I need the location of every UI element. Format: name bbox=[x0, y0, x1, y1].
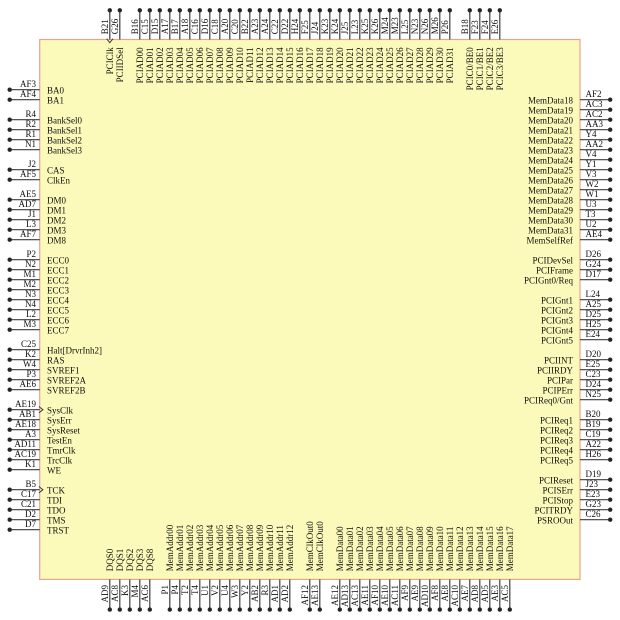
svg-text:MemData22: MemData22 bbox=[528, 135, 573, 145]
svg-text:F23: F23 bbox=[470, 20, 480, 35]
svg-text:AB1: AB1 bbox=[19, 409, 36, 419]
svg-text:N25: N25 bbox=[586, 389, 602, 399]
svg-text:AD13: AD13 bbox=[340, 585, 350, 607]
svg-text:ECC0: ECC0 bbox=[47, 255, 70, 265]
svg-text:PCIIDSel: PCIIDSel bbox=[115, 47, 125, 83]
svg-text:C22: C22 bbox=[270, 19, 280, 34]
svg-text:TMS: TMS bbox=[47, 515, 66, 525]
svg-text:MemClkOut0: MemClkOut0 bbox=[315, 521, 325, 572]
svg-text:C21: C21 bbox=[21, 499, 36, 509]
svg-text:SysClk: SysClk bbox=[47, 405, 74, 415]
svg-text:MemData24: MemData24 bbox=[528, 155, 573, 165]
svg-text:ECC1: ECC1 bbox=[47, 265, 69, 275]
svg-text:PCIAD15: PCIAD15 bbox=[285, 47, 295, 84]
svg-text:D2: D2 bbox=[25, 509, 36, 519]
svg-text:J25: J25 bbox=[340, 21, 350, 34]
svg-text:J2: J2 bbox=[28, 159, 36, 169]
svg-text:PCIAD07: PCIAD07 bbox=[205, 47, 215, 84]
svg-text:AE19: AE19 bbox=[15, 399, 36, 409]
svg-text:C17: C17 bbox=[21, 489, 37, 499]
svg-text:ECC4: ECC4 bbox=[47, 295, 70, 305]
svg-text:MemData18: MemData18 bbox=[528, 95, 573, 105]
svg-text:K26: K26 bbox=[370, 18, 380, 34]
svg-text:K25: K25 bbox=[360, 18, 370, 34]
svg-text:MemAddr10: MemAddr10 bbox=[265, 524, 275, 571]
svg-text:M24: M24 bbox=[380, 17, 390, 35]
svg-text:PCIC3/BE3: PCIC3/BE3 bbox=[495, 47, 505, 91]
svg-text:D25: D25 bbox=[586, 309, 602, 319]
svg-text:AD2: AD2 bbox=[280, 585, 290, 603]
svg-text:PCIAD27: PCIAD27 bbox=[405, 47, 415, 84]
svg-text:PCISErr: PCISErr bbox=[542, 485, 573, 495]
svg-text:MemData02: MemData02 bbox=[355, 526, 365, 571]
svg-text:BankSel2: BankSel2 bbox=[47, 135, 82, 145]
svg-text:CAS: CAS bbox=[47, 165, 65, 175]
svg-text:C18: C18 bbox=[210, 19, 220, 35]
svg-text:F24: F24 bbox=[480, 20, 490, 35]
svg-text:D19: D19 bbox=[586, 469, 602, 479]
svg-text:B22: B22 bbox=[240, 19, 250, 34]
svg-text:DM1: DM1 bbox=[47, 205, 66, 215]
svg-text:PCIAD29: PCIAD29 bbox=[425, 47, 435, 84]
svg-text:D17: D17 bbox=[586, 269, 602, 279]
svg-text:PCIAD28: PCIAD28 bbox=[415, 47, 425, 84]
svg-text:N1: N1 bbox=[25, 139, 36, 149]
svg-text:H26: H26 bbox=[586, 449, 602, 459]
svg-text:R2: R2 bbox=[25, 119, 36, 129]
svg-text:DQS3: DQS3 bbox=[135, 548, 145, 571]
svg-text:AC10: AC10 bbox=[450, 585, 460, 607]
svg-text:MemData07: MemData07 bbox=[405, 526, 415, 571]
svg-text:N3: N3 bbox=[25, 289, 36, 299]
svg-text:U1: U1 bbox=[200, 585, 210, 596]
svg-text:J1: J1 bbox=[28, 209, 36, 219]
svg-text:MemAddr08: MemAddr08 bbox=[245, 524, 255, 571]
svg-text:Y1: Y1 bbox=[586, 159, 597, 169]
svg-text:C16: C16 bbox=[190, 19, 200, 35]
svg-text:C25: C25 bbox=[21, 339, 37, 349]
svg-text:A23: A23 bbox=[250, 18, 260, 34]
svg-text:AC6: AC6 bbox=[140, 585, 150, 603]
svg-text:A17: A17 bbox=[160, 18, 170, 34]
svg-text:A18: A18 bbox=[180, 18, 190, 34]
svg-text:K2: K2 bbox=[25, 349, 36, 359]
svg-text:PCIAD23: PCIAD23 bbox=[365, 47, 375, 84]
svg-text:Y2: Y2 bbox=[240, 585, 250, 596]
svg-text:W4: W4 bbox=[23, 359, 36, 369]
svg-text:AE6: AE6 bbox=[20, 379, 37, 389]
svg-text:P3: P3 bbox=[26, 369, 36, 379]
svg-text:AE11: AE11 bbox=[360, 585, 370, 606]
svg-text:PCIAD00: PCIAD00 bbox=[135, 47, 145, 84]
svg-text:L23: L23 bbox=[350, 19, 360, 34]
svg-text:MemData25: MemData25 bbox=[528, 165, 573, 175]
svg-text:J23: J23 bbox=[586, 479, 599, 489]
svg-text:PCIAD20: PCIAD20 bbox=[335, 47, 345, 84]
svg-text:N23: N23 bbox=[410, 18, 420, 34]
svg-text:M3: M3 bbox=[23, 319, 36, 329]
svg-text:PCIGnt0/Req: PCIGnt0/Req bbox=[524, 275, 574, 285]
svg-text:K23: K23 bbox=[320, 18, 330, 34]
svg-text:AA3: AA3 bbox=[586, 119, 604, 129]
svg-text:PCIAD16: PCIAD16 bbox=[295, 47, 305, 84]
svg-text:PCIINT: PCIINT bbox=[544, 355, 574, 365]
svg-text:PCIPErr: PCIPErr bbox=[542, 385, 573, 395]
svg-text:MemAddr11: MemAddr11 bbox=[275, 525, 285, 571]
svg-text:MemData21: MemData21 bbox=[528, 125, 573, 135]
svg-text:AC19: AC19 bbox=[14, 449, 36, 459]
svg-text:C15: C15 bbox=[140, 19, 150, 35]
svg-text:AD8: AD8 bbox=[470, 585, 480, 603]
svg-text:PCIAD21: PCIAD21 bbox=[345, 47, 355, 83]
svg-text:MemData01: MemData01 bbox=[345, 526, 355, 571]
svg-text:H24: H24 bbox=[290, 18, 300, 34]
svg-text:T3: T3 bbox=[586, 209, 596, 219]
svg-text:PCIClk: PCIClk bbox=[105, 47, 115, 75]
svg-text:D22: D22 bbox=[280, 19, 290, 35]
svg-text:M23: M23 bbox=[390, 17, 400, 35]
svg-text:DQS2: DQS2 bbox=[125, 549, 135, 572]
svg-text:PCIC2/BE2: PCIC2/BE2 bbox=[485, 47, 495, 90]
svg-text:PCIReq3: PCIReq3 bbox=[540, 435, 574, 445]
svg-text:MemAddr07: MemAddr07 bbox=[235, 524, 245, 571]
svg-text:PCIGnt3: PCIGnt3 bbox=[541, 315, 574, 325]
svg-text:C19: C19 bbox=[586, 429, 602, 439]
svg-text:MemAddr04: MemAddr04 bbox=[205, 524, 215, 571]
svg-text:PCIAD12: PCIAD12 bbox=[255, 47, 265, 83]
svg-text:N4: N4 bbox=[25, 299, 36, 309]
svg-text:Halt[DrvrInh2]: Halt[DrvrInh2] bbox=[47, 345, 102, 355]
svg-text:MemData06: MemData06 bbox=[395, 526, 405, 571]
svg-text:MemAddr06: MemAddr06 bbox=[225, 524, 235, 571]
svg-text:D26: D26 bbox=[586, 249, 602, 259]
svg-text:V3: V3 bbox=[586, 169, 597, 179]
svg-text:P4: P4 bbox=[170, 585, 180, 595]
svg-text:A3: A3 bbox=[25, 429, 36, 439]
svg-text:A25: A25 bbox=[586, 299, 602, 309]
svg-text:PCIC1/BE1: PCIC1/BE1 bbox=[475, 47, 485, 90]
svg-text:RAS: RAS bbox=[47, 355, 65, 365]
svg-text:PCIAD10: PCIAD10 bbox=[235, 47, 245, 84]
svg-text:B21: B21 bbox=[100, 19, 110, 34]
svg-text:SVREF2A: SVREF2A bbox=[47, 375, 87, 385]
svg-text:AE12: AE12 bbox=[330, 585, 340, 606]
svg-text:C26: C26 bbox=[586, 509, 602, 519]
svg-text:PCIAD08: PCIAD08 bbox=[215, 47, 225, 84]
svg-text:PCIAD25: PCIAD25 bbox=[385, 47, 395, 84]
svg-text:R3: R3 bbox=[260, 585, 270, 596]
svg-text:AE9: AE9 bbox=[410, 585, 420, 602]
svg-text:ECC6: ECC6 bbox=[47, 315, 70, 325]
svg-text:DM8: DM8 bbox=[47, 235, 67, 245]
svg-text:PCIGnt2: PCIGnt2 bbox=[541, 305, 573, 315]
svg-text:AE7: AE7 bbox=[460, 585, 470, 602]
svg-text:K1: K1 bbox=[25, 459, 36, 469]
svg-text:AC3: AC3 bbox=[586, 99, 604, 109]
svg-text:D20: D20 bbox=[586, 349, 602, 359]
svg-text:BankSel3: BankSel3 bbox=[47, 145, 82, 155]
svg-text:PCIAD03: PCIAD03 bbox=[165, 47, 175, 84]
svg-text:PCIAD17: PCIAD17 bbox=[305, 47, 315, 84]
svg-text:PCIAD02: PCIAD02 bbox=[155, 47, 165, 83]
svg-text:N2: N2 bbox=[25, 259, 36, 269]
svg-text:V2: V2 bbox=[210, 585, 220, 596]
svg-text:PCIGnt1: PCIGnt1 bbox=[541, 295, 573, 305]
svg-text:MemData19: MemData19 bbox=[528, 105, 573, 115]
svg-text:AA2: AA2 bbox=[586, 139, 604, 149]
svg-text:B16: B16 bbox=[130, 19, 140, 35]
svg-text:AD1: AD1 bbox=[270, 585, 280, 603]
svg-text:DM3: DM3 bbox=[47, 225, 67, 235]
svg-text:MemData09: MemData09 bbox=[425, 526, 435, 571]
svg-text:MemData23: MemData23 bbox=[528, 145, 573, 155]
svg-text:DQS1: DQS1 bbox=[115, 549, 125, 572]
svg-text:L2: L2 bbox=[26, 309, 36, 319]
svg-text:U2: U2 bbox=[586, 219, 597, 229]
svg-text:AD10: AD10 bbox=[420, 585, 430, 607]
svg-text:AE10: AE10 bbox=[380, 585, 390, 606]
svg-text:B17: B17 bbox=[170, 19, 180, 35]
svg-text:T2: T2 bbox=[180, 585, 190, 595]
svg-text:MemSelfRef: MemSelfRef bbox=[527, 235, 574, 245]
svg-text:PCIAD04: PCIAD04 bbox=[175, 47, 185, 84]
svg-text:WE: WE bbox=[47, 465, 61, 475]
svg-text:P26: P26 bbox=[440, 20, 450, 35]
svg-text:K3: K3 bbox=[120, 585, 130, 596]
svg-text:V4: V4 bbox=[586, 149, 597, 159]
svg-text:PCIAD31: PCIAD31 bbox=[445, 47, 455, 83]
svg-text:E23: E23 bbox=[586, 489, 601, 499]
svg-text:ECC3: ECC3 bbox=[47, 285, 70, 295]
svg-text:MemData03: MemData03 bbox=[365, 526, 375, 571]
svg-text:PCIGnt4: PCIGnt4 bbox=[541, 325, 574, 335]
svg-text:MemAddr00: MemAddr00 bbox=[165, 524, 175, 571]
svg-text:PCIReq0/Gnt: PCIReq0/Gnt bbox=[524, 395, 574, 405]
svg-text:MemAddr12: MemAddr12 bbox=[285, 525, 295, 572]
svg-text:TestEn: TestEn bbox=[47, 435, 72, 445]
svg-text:PSROOut: PSROOut bbox=[537, 515, 574, 525]
svg-text:M26: M26 bbox=[430, 17, 440, 35]
svg-text:MemData20: MemData20 bbox=[528, 115, 573, 125]
svg-text:DQS8: DQS8 bbox=[145, 548, 155, 571]
svg-text:T4: T4 bbox=[190, 585, 200, 595]
svg-text:PCIGnt5: PCIGnt5 bbox=[541, 335, 574, 345]
svg-text:MemData00: MemData00 bbox=[335, 526, 345, 571]
svg-text:AD11: AD11 bbox=[14, 439, 36, 449]
svg-text:PCIAD18: PCIAD18 bbox=[315, 47, 325, 84]
svg-text:MemAddr05: MemAddr05 bbox=[215, 524, 225, 571]
svg-text:AF5: AF5 bbox=[20, 169, 37, 179]
svg-text:ECC7: ECC7 bbox=[47, 325, 70, 335]
svg-text:MemAddr03: MemAddr03 bbox=[195, 524, 205, 571]
svg-text:D15: D15 bbox=[150, 18, 160, 34]
svg-text:MemData15: MemData15 bbox=[485, 526, 495, 571]
svg-text:L24: L24 bbox=[586, 289, 601, 299]
svg-text:PCIAD05: PCIAD05 bbox=[185, 47, 195, 84]
svg-text:E25: E25 bbox=[586, 359, 601, 369]
svg-text:E26: E26 bbox=[490, 19, 500, 34]
svg-text:PCIAD24: PCIAD24 bbox=[375, 47, 385, 84]
svg-text:G23: G23 bbox=[586, 499, 602, 509]
svg-text:PCIAD09: PCIAD09 bbox=[225, 47, 235, 84]
svg-text:DQS0: DQS0 bbox=[105, 548, 115, 571]
svg-text:L25: L25 bbox=[400, 19, 410, 34]
svg-text:TrcClk: TrcClk bbox=[47, 455, 73, 465]
svg-text:C20: C20 bbox=[230, 19, 240, 35]
svg-text:MemData12: MemData12 bbox=[455, 526, 465, 571]
svg-text:PCIAD19: PCIAD19 bbox=[325, 47, 335, 84]
svg-text:MemData14: MemData14 bbox=[475, 526, 485, 571]
svg-text:DM2: DM2 bbox=[47, 215, 66, 225]
svg-text:B5: B5 bbox=[25, 479, 36, 489]
svg-text:TRST: TRST bbox=[47, 525, 70, 535]
svg-text:M2: M2 bbox=[23, 279, 36, 289]
svg-text:MemData26: MemData26 bbox=[528, 175, 573, 185]
svg-text:AF9: AF9 bbox=[400, 585, 410, 602]
svg-text:G24: G24 bbox=[586, 259, 602, 269]
svg-text:A24: A24 bbox=[260, 18, 270, 34]
svg-text:PCIStop: PCIStop bbox=[542, 495, 573, 505]
svg-text:AE5: AE5 bbox=[20, 189, 37, 199]
svg-text:M4: M4 bbox=[130, 585, 140, 598]
svg-text:ECC5: ECC5 bbox=[47, 305, 70, 315]
svg-text:SysReset: SysReset bbox=[47, 425, 81, 435]
svg-text:AB2: AB2 bbox=[250, 585, 260, 602]
svg-text:AF2: AF2 bbox=[586, 89, 602, 99]
svg-text:TCK: TCK bbox=[47, 485, 66, 495]
svg-text:M1: M1 bbox=[23, 269, 36, 279]
svg-text:BankSel1: BankSel1 bbox=[47, 125, 82, 135]
svg-text:AE8: AE8 bbox=[440, 585, 450, 602]
svg-text:A22: A22 bbox=[586, 439, 602, 449]
svg-text:U3: U3 bbox=[586, 199, 597, 209]
svg-text:MemData04: MemData04 bbox=[375, 526, 385, 571]
svg-text:PCIReq1: PCIReq1 bbox=[540, 415, 573, 425]
svg-text:TmrClk: TmrClk bbox=[47, 445, 76, 455]
svg-text:W3: W3 bbox=[230, 585, 240, 598]
svg-text:AE4: AE4 bbox=[586, 229, 603, 239]
svg-text:TDI: TDI bbox=[47, 495, 62, 505]
svg-text:MemData17: MemData17 bbox=[505, 526, 515, 571]
svg-text:AF10: AF10 bbox=[370, 585, 380, 606]
svg-text:TDO: TDO bbox=[47, 505, 66, 515]
svg-text:BA1: BA1 bbox=[47, 95, 64, 105]
svg-text:AE13: AE13 bbox=[310, 585, 320, 606]
svg-text:MemAddr09: MemAddr09 bbox=[255, 524, 265, 571]
svg-text:D24: D24 bbox=[586, 379, 602, 389]
svg-text:PCITRDY: PCITRDY bbox=[534, 505, 573, 515]
svg-text:E24: E24 bbox=[586, 329, 601, 339]
svg-text:PCIAD06: PCIAD06 bbox=[195, 47, 205, 84]
svg-text:MemData29: MemData29 bbox=[528, 205, 573, 215]
svg-text:PCIPar: PCIPar bbox=[547, 375, 573, 385]
svg-text:BankSel0: BankSel0 bbox=[47, 115, 82, 125]
svg-text:H25: H25 bbox=[586, 319, 602, 329]
svg-text:PCIReq2: PCIReq2 bbox=[540, 425, 573, 435]
svg-text:G26: G26 bbox=[110, 18, 120, 34]
svg-text:BA0: BA0 bbox=[47, 85, 65, 95]
svg-text:SVREF1: SVREF1 bbox=[47, 365, 80, 375]
svg-text:P1: P1 bbox=[160, 585, 170, 595]
svg-text:PCIReq4: PCIReq4 bbox=[540, 445, 574, 455]
svg-text:B20: B20 bbox=[586, 409, 602, 419]
svg-text:AC13: AC13 bbox=[350, 585, 360, 607]
svg-text:AF7: AF7 bbox=[20, 229, 37, 239]
svg-text:U4: U4 bbox=[220, 585, 230, 596]
svg-text:MemData28: MemData28 bbox=[528, 195, 573, 205]
svg-text:PCIDevSel: PCIDevSel bbox=[533, 255, 574, 265]
svg-text:ClkEn: ClkEn bbox=[47, 175, 71, 185]
svg-text:A20: A20 bbox=[220, 18, 230, 34]
svg-text:R1: R1 bbox=[25, 129, 36, 139]
svg-text:PCIAD26: PCIAD26 bbox=[395, 47, 405, 84]
svg-text:MemData16: MemData16 bbox=[495, 526, 505, 571]
svg-text:AC5: AC5 bbox=[500, 585, 510, 603]
svg-text:AE3: AE3 bbox=[490, 585, 500, 602]
svg-text:J24: J24 bbox=[310, 21, 320, 34]
svg-text:MemClkOut0: MemClkOut0 bbox=[305, 521, 315, 572]
svg-text:Y4: Y4 bbox=[586, 129, 597, 139]
svg-text:PCIC0/BE0: PCIC0/BE0 bbox=[465, 47, 475, 91]
svg-text:AC8: AC8 bbox=[110, 585, 120, 603]
svg-text:PCIAD13: PCIAD13 bbox=[265, 47, 275, 84]
svg-text:PCIFrame: PCIFrame bbox=[536, 265, 573, 275]
svg-text:MemData05: MemData05 bbox=[385, 526, 395, 571]
svg-text:AF8: AF8 bbox=[430, 585, 440, 602]
svg-text:B18: B18 bbox=[460, 19, 470, 35]
svg-text:DM0: DM0 bbox=[47, 195, 67, 205]
svg-text:N26: N26 bbox=[420, 18, 430, 34]
svg-text:K24: K24 bbox=[330, 18, 340, 34]
svg-text:MemData10: MemData10 bbox=[435, 526, 445, 571]
svg-text:ECC2: ECC2 bbox=[47, 275, 69, 285]
svg-text:SysErr: SysErr bbox=[47, 415, 72, 425]
svg-text:PCIAD14: PCIAD14 bbox=[275, 47, 285, 84]
svg-text:AD5: AD5 bbox=[480, 585, 490, 603]
svg-text:AE18: AE18 bbox=[15, 419, 36, 429]
svg-text:F25: F25 bbox=[300, 20, 310, 35]
svg-text:MemData08: MemData08 bbox=[415, 526, 425, 571]
svg-text:PCIAD22: PCIAD22 bbox=[355, 47, 365, 83]
svg-text:B19: B19 bbox=[586, 419, 602, 429]
svg-text:PCIReq5: PCIReq5 bbox=[540, 455, 574, 465]
svg-text:MemAddr02: MemAddr02 bbox=[185, 525, 195, 572]
svg-text:W2: W2 bbox=[586, 179, 599, 189]
svg-text:AD9: AD9 bbox=[100, 585, 110, 603]
svg-text:AF4: AF4 bbox=[20, 89, 37, 99]
svg-text:MemData30: MemData30 bbox=[528, 215, 573, 225]
svg-text:D16: D16 bbox=[200, 18, 210, 34]
svg-text:P2: P2 bbox=[26, 249, 36, 259]
svg-text:MemData11: MemData11 bbox=[445, 527, 455, 572]
svg-text:PCIAD01: PCIAD01 bbox=[145, 47, 155, 83]
svg-text:AF3: AF3 bbox=[20, 79, 37, 89]
svg-text:MemAddr01: MemAddr01 bbox=[175, 525, 185, 572]
svg-text:AF12: AF12 bbox=[300, 585, 310, 606]
svg-text:L3: L3 bbox=[26, 219, 36, 229]
svg-text:AD7: AD7 bbox=[19, 199, 37, 209]
svg-text:MemData27: MemData27 bbox=[528, 185, 573, 195]
svg-text:C23: C23 bbox=[586, 369, 602, 379]
svg-text:MemData31: MemData31 bbox=[528, 225, 573, 235]
svg-text:R4: R4 bbox=[25, 109, 36, 119]
svg-text:PCIAD11: PCIAD11 bbox=[245, 47, 255, 83]
svg-text:PCIIRDY: PCIIRDY bbox=[537, 365, 574, 375]
svg-text:MemData13: MemData13 bbox=[465, 526, 475, 571]
svg-text:PCIReset: PCIReset bbox=[539, 475, 574, 485]
svg-text:D7: D7 bbox=[25, 519, 36, 529]
svg-text:PCIAD30: PCIAD30 bbox=[435, 47, 445, 84]
